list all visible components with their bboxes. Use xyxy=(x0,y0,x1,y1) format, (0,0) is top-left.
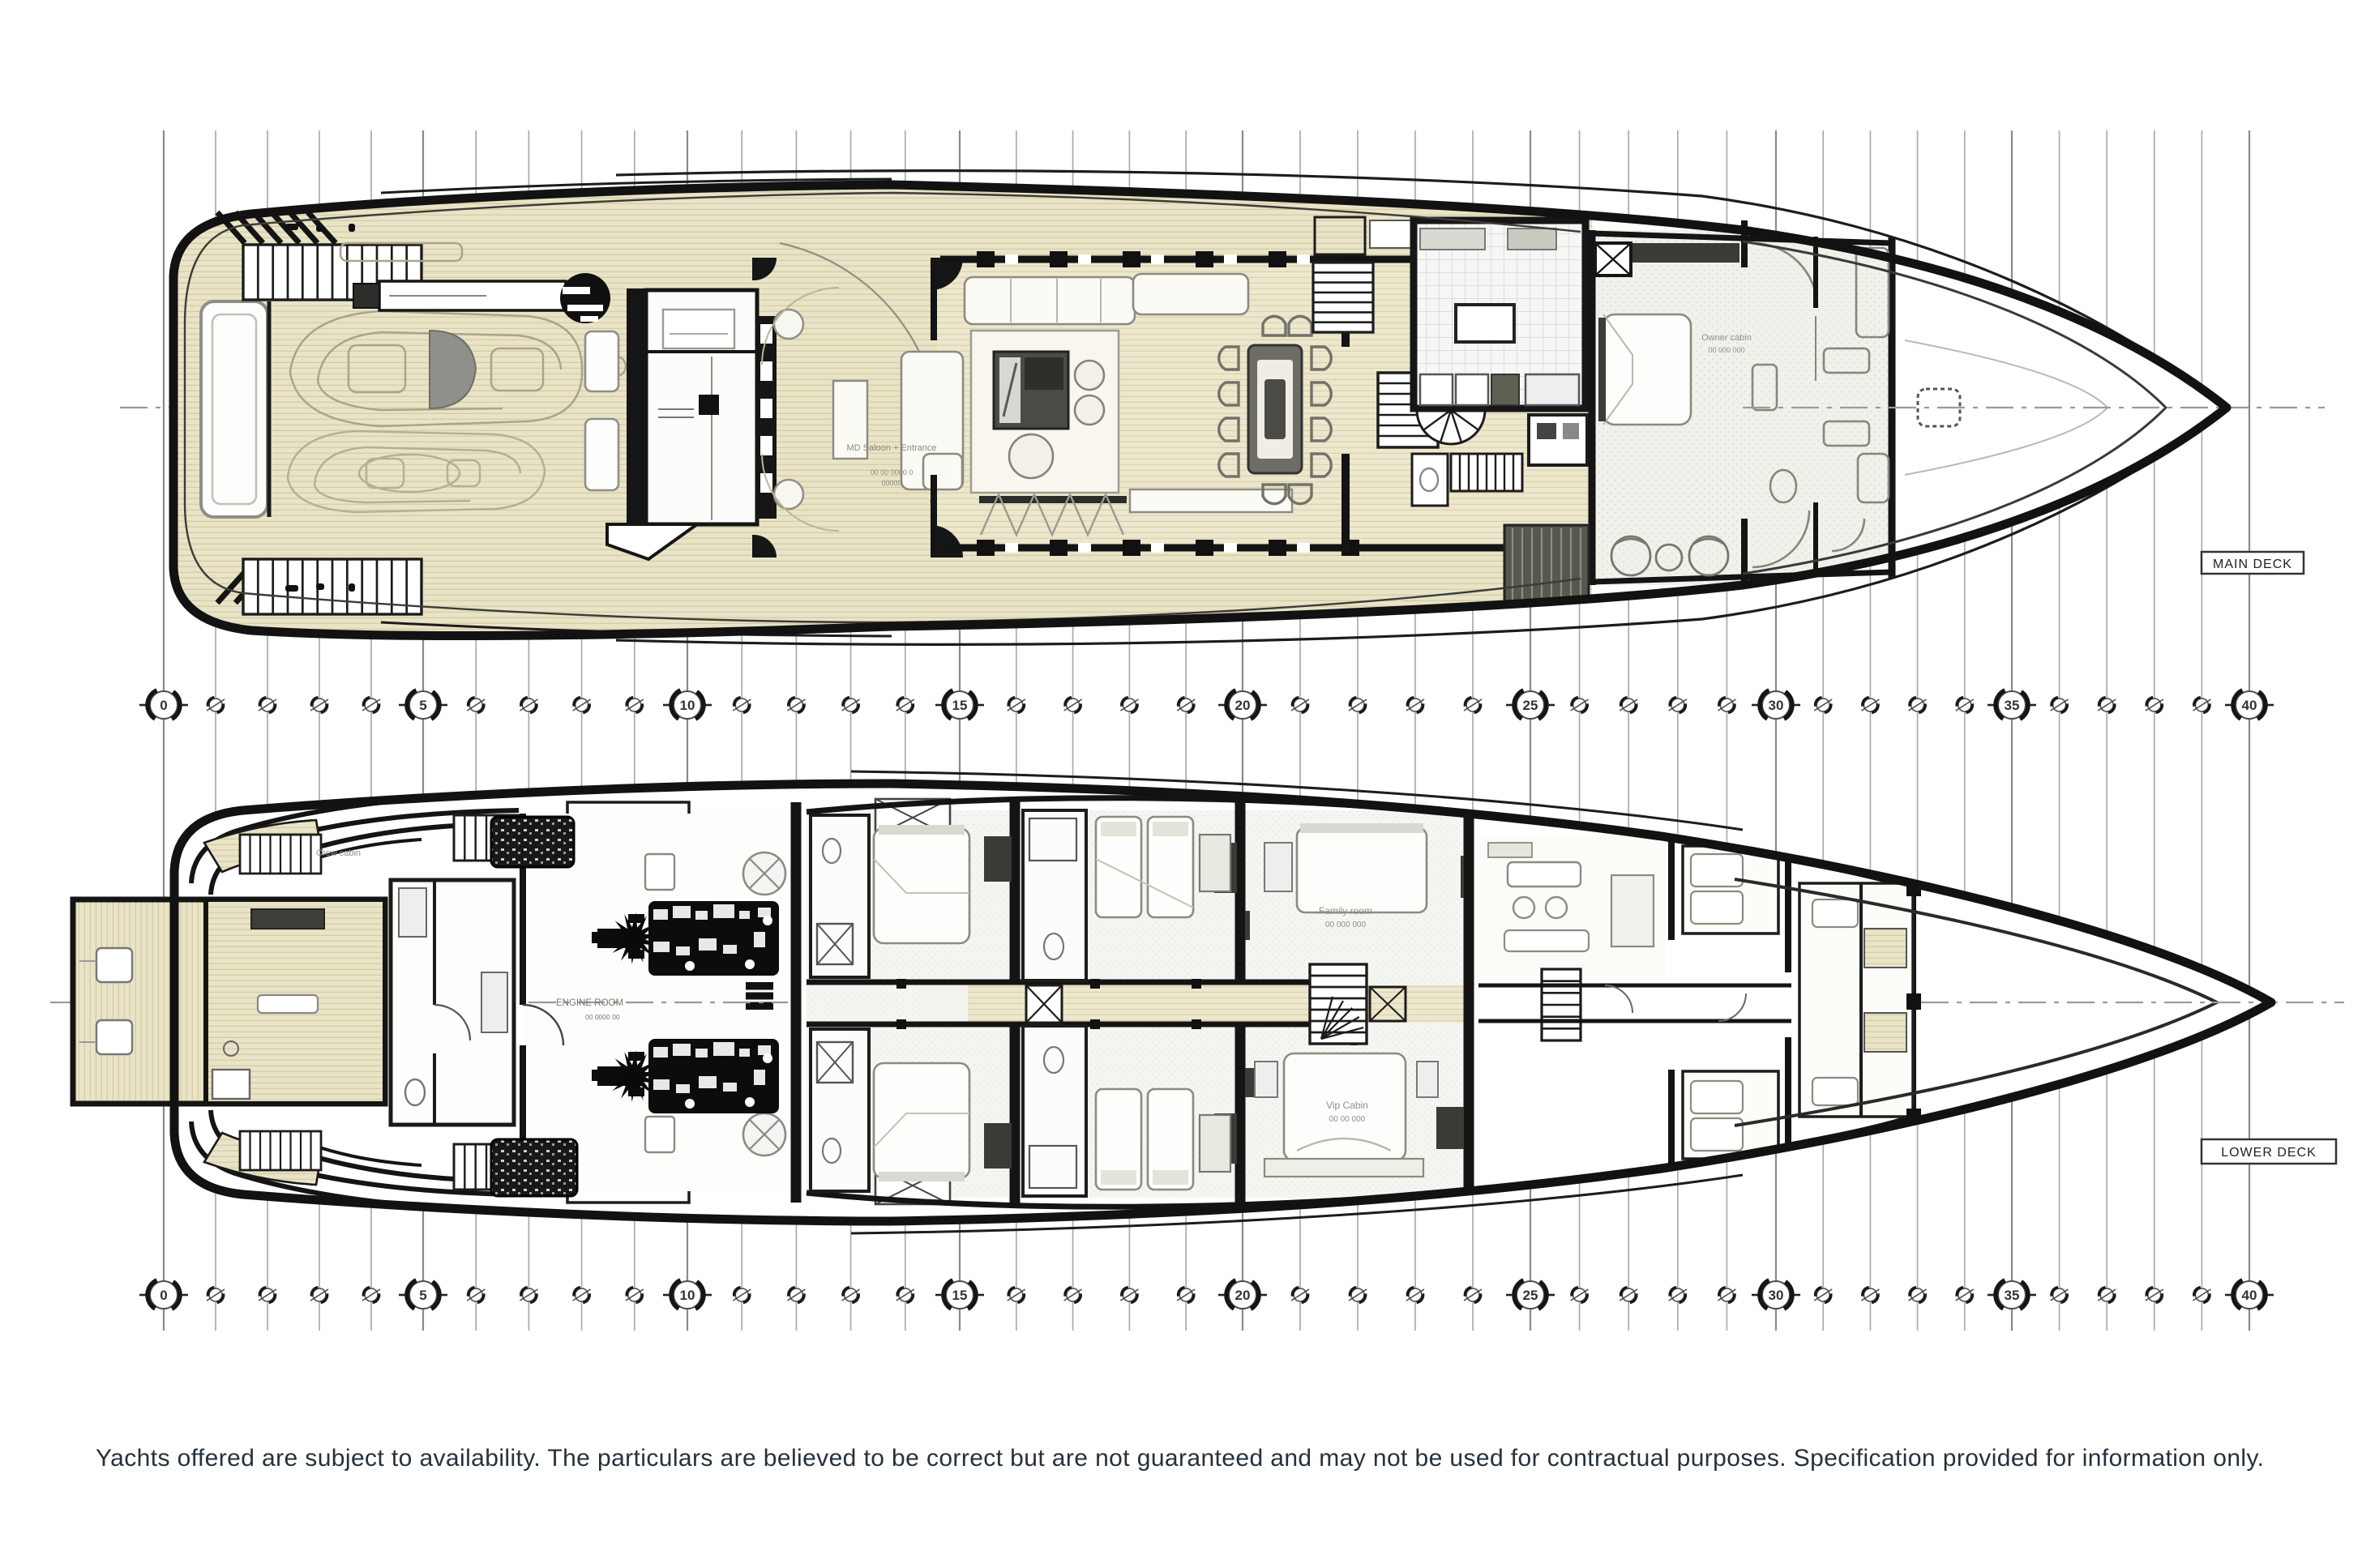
svg-text:40: 40 xyxy=(2242,1288,2257,1303)
svg-text:00 0000 00: 00 0000 00 xyxy=(585,1013,620,1021)
svg-text:5: 5 xyxy=(419,698,426,713)
svg-text:Family room: Family room xyxy=(1319,905,1372,916)
svg-text:MD Saloon + Entrance: MD Saloon + Entrance xyxy=(847,443,937,453)
svg-text:20: 20 xyxy=(1235,1288,1251,1303)
svg-text:00000: 00000 xyxy=(881,479,901,487)
svg-text:30: 30 xyxy=(1769,1288,1784,1303)
svg-text:Yachts offered are subject to: Yachts offered are subject to availabili… xyxy=(96,1445,2264,1472)
svg-text:25: 25 xyxy=(1523,698,1538,713)
svg-text:10: 10 xyxy=(680,698,695,713)
svg-text:Crew cabin: Crew cabin xyxy=(316,848,361,858)
svg-text:35: 35 xyxy=(2005,698,2020,713)
svg-text:15: 15 xyxy=(952,1288,968,1303)
svg-text:10: 10 xyxy=(680,1288,695,1303)
svg-text:20: 20 xyxy=(1235,698,1251,713)
svg-text:MAIN DECK: MAIN DECK xyxy=(2213,558,2292,571)
svg-text:LOWER DECK: LOWER DECK xyxy=(2221,1146,2317,1160)
svg-text:ENGINE ROOM: ENGINE ROOM xyxy=(556,998,623,1008)
svg-text:0: 0 xyxy=(160,1288,167,1303)
svg-text:15: 15 xyxy=(952,698,968,713)
svg-text:00 00 000: 00 00 000 xyxy=(1329,1115,1366,1124)
svg-text:Vip Cabin: Vip Cabin xyxy=(1326,1100,1368,1111)
svg-text:25: 25 xyxy=(1523,1288,1538,1303)
svg-text:30: 30 xyxy=(1769,698,1784,713)
svg-text:00 00 0000 0: 00 00 0000 0 xyxy=(871,468,914,476)
svg-text:00 000 000: 00 000 000 xyxy=(1325,921,1366,929)
svg-text:5: 5 xyxy=(419,1288,426,1303)
svg-text:00 000 000: 00 000 000 xyxy=(1708,346,1744,354)
svg-text:35: 35 xyxy=(2005,1288,2020,1303)
svg-text:Owner cabin: Owner cabin xyxy=(1701,333,1752,343)
svg-text:40: 40 xyxy=(2242,698,2257,713)
svg-text:0: 0 xyxy=(160,698,167,713)
